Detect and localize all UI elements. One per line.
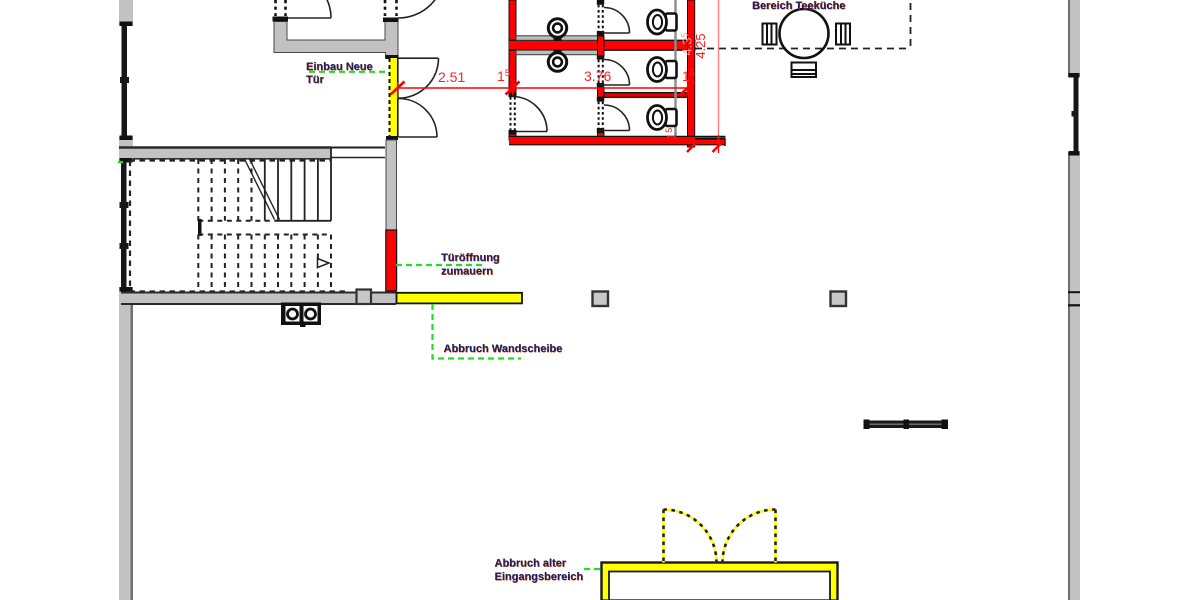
svg-text:4.25: 4.25 (693, 33, 708, 58)
svg-text:Abbruch alter: Abbruch alter (495, 558, 567, 570)
svg-text:Bereich Teeküche: Bereich Teeküche (752, 0, 845, 12)
svg-text:Abbruch Wandscheibe: Abbruch Wandscheibe (444, 343, 563, 355)
svg-text:3.76: 3.76 (584, 68, 611, 84)
svg-text:Tür: Tür (306, 74, 324, 86)
svg-text:Eingangsbereich: Eingangsbereich (495, 571, 584, 583)
svg-text:2.51: 2.51 (438, 69, 465, 85)
svg-text:Türöffnung: Türöffnung (441, 252, 500, 264)
svg-text:zumauern: zumauern (441, 266, 493, 278)
